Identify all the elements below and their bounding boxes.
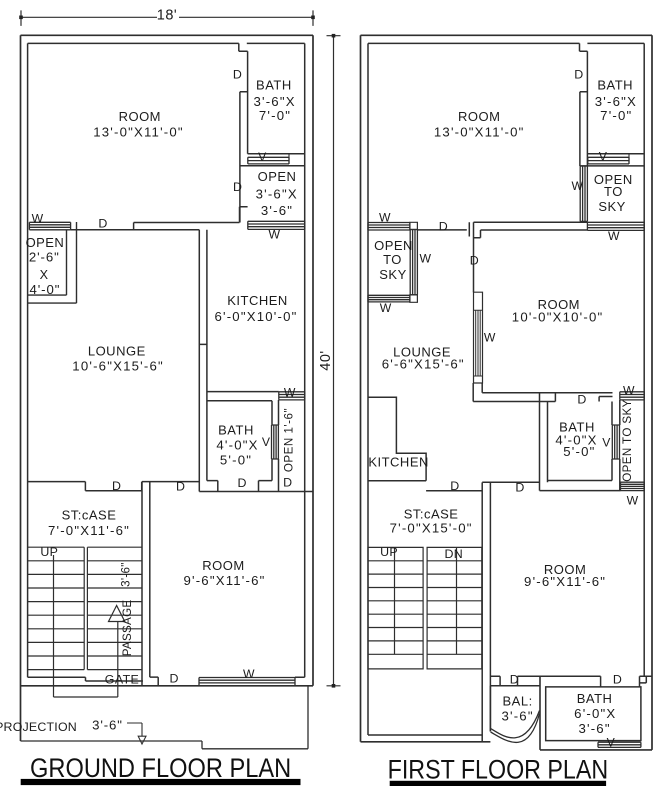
svg-text:18': 18' [157, 8, 177, 24]
svg-text:PASSAGE: PASSAGE [121, 600, 134, 657]
svg-text:2'-6": 2'-6" [29, 249, 60, 264]
svg-text:KITCHEN: KITCHEN [368, 454, 429, 469]
svg-text:13'-0"X11'-0": 13'-0"X11'-0" [93, 125, 184, 140]
svg-text:4'-0": 4'-0" [30, 282, 61, 297]
svg-text:3'-6"X: 3'-6"X [595, 94, 637, 109]
svg-text:D: D [574, 68, 583, 82]
svg-text:40': 40' [318, 350, 334, 370]
svg-text:V: V [607, 736, 616, 750]
svg-text:OPEN: OPEN [258, 169, 297, 184]
svg-text:X: X [40, 268, 49, 282]
svg-text:SKY: SKY [379, 267, 407, 282]
svg-text:D: D [450, 479, 459, 493]
svg-text:D: D [510, 672, 519, 686]
svg-text:DN: DN [445, 547, 464, 561]
svg-text:UP: UP [380, 545, 398, 559]
svg-text:7'-0"X11'-6": 7'-0"X11'-6" [48, 523, 130, 538]
svg-text:D: D [176, 479, 185, 493]
svg-text:D: D [613, 672, 622, 686]
svg-text:KITCHEN: KITCHEN [227, 293, 288, 308]
svg-text:3'-6": 3'-6" [578, 721, 610, 736]
svg-text:D: D [577, 393, 586, 407]
svg-text:W: W [419, 252, 431, 266]
svg-text:D: D [439, 220, 448, 234]
svg-text:LOUNGE: LOUNGE [88, 344, 146, 359]
svg-text:D: D [515, 480, 524, 494]
svg-text:D: D [283, 475, 292, 489]
svg-text:ST:cASE: ST:cASE [62, 507, 117, 522]
svg-text:7'-0": 7'-0" [600, 108, 632, 123]
svg-text:W: W [571, 179, 583, 193]
svg-text:W: W [284, 386, 296, 400]
svg-text:3'-6": 3'-6" [261, 203, 293, 218]
svg-text:OPEN 1'-6": OPEN 1'-6" [283, 408, 296, 472]
svg-text:3'-6": 3'-6" [119, 562, 132, 587]
svg-text:W: W [379, 211, 391, 225]
svg-text:D: D [233, 68, 242, 82]
svg-text:V: V [258, 150, 267, 164]
svg-text:ROOM: ROOM [202, 558, 244, 573]
svg-text:ROOM: ROOM [458, 109, 500, 124]
svg-text:ROOM: ROOM [119, 109, 161, 124]
svg-text:7'-0"X15'-0": 7'-0"X15'-0" [390, 521, 473, 536]
svg-text:5'-0": 5'-0" [563, 444, 595, 459]
svg-text:6'-0"X: 6'-0"X [574, 706, 616, 721]
svg-text:OPEN: OPEN [26, 235, 64, 250]
svg-text:FIRST FLOOR PLAN: FIRST FLOOR PLAN [388, 755, 609, 785]
svg-text:TO: TO [604, 184, 623, 199]
svg-text:GATE: GATE [105, 672, 139, 686]
svg-text:6'-0"X10'-0": 6'-0"X10'-0" [214, 309, 297, 324]
svg-text:7'-0": 7'-0" [259, 108, 291, 123]
svg-text:W: W [32, 212, 44, 226]
svg-text:W: W [623, 384, 635, 398]
svg-text:V: V [262, 435, 271, 449]
svg-text:PROJECTION: PROJECTION [0, 720, 77, 734]
svg-text:9'-6"X11'-6": 9'-6"X11'-6" [524, 574, 606, 589]
svg-text:D: D [470, 254, 479, 268]
svg-text:13'-0"X11'-0": 13'-0"X11'-0" [434, 125, 525, 140]
svg-text:10'-6"X15'-6": 10'-6"X15'-6" [72, 359, 164, 374]
svg-text:W: W [243, 667, 255, 681]
svg-text:BATH: BATH [577, 691, 613, 706]
svg-text:UP: UP [40, 545, 58, 559]
svg-text:BATH: BATH [218, 423, 254, 438]
svg-text:W: W [268, 228, 280, 242]
svg-text:D: D [170, 672, 179, 686]
svg-text:OPEN: OPEN [374, 238, 413, 253]
svg-text:V: V [599, 150, 608, 164]
svg-text:BAL:: BAL: [503, 694, 533, 709]
svg-text:6'-6"X15'-6": 6'-6"X15'-6" [382, 357, 465, 372]
svg-text:W: W [627, 494, 639, 508]
svg-text:D: D [112, 479, 121, 493]
svg-text:9'-6"X11'-6": 9'-6"X11'-6" [183, 573, 265, 588]
svg-text:V: V [602, 435, 611, 449]
svg-text:OPEN TO SKY: OPEN TO SKY [621, 399, 634, 482]
svg-text:D: D [233, 180, 242, 194]
svg-text:3'-6": 3'-6" [92, 718, 123, 733]
svg-text:BATH: BATH [256, 77, 292, 92]
svg-text:4'-0"X: 4'-0"X [216, 438, 258, 453]
svg-text:W: W [484, 330, 496, 344]
svg-text:3'-6"X: 3'-6"X [256, 187, 298, 202]
svg-text:D: D [238, 476, 247, 490]
svg-text:3'-6": 3'-6" [501, 708, 533, 723]
svg-text:10'-0"X10'-0": 10'-0"X10'-0" [512, 309, 604, 324]
svg-text:SKY: SKY [598, 199, 626, 214]
svg-text:D: D [98, 217, 107, 231]
svg-text:W: W [380, 301, 392, 315]
svg-text:BATH: BATH [597, 77, 633, 92]
svg-text:3'-6"X: 3'-6"X [253, 94, 295, 109]
svg-text:TO: TO [383, 252, 402, 267]
svg-text:ST:cASE: ST:cASE [404, 507, 459, 522]
svg-text:5'-0": 5'-0" [220, 453, 252, 468]
svg-text:W: W [608, 229, 620, 243]
